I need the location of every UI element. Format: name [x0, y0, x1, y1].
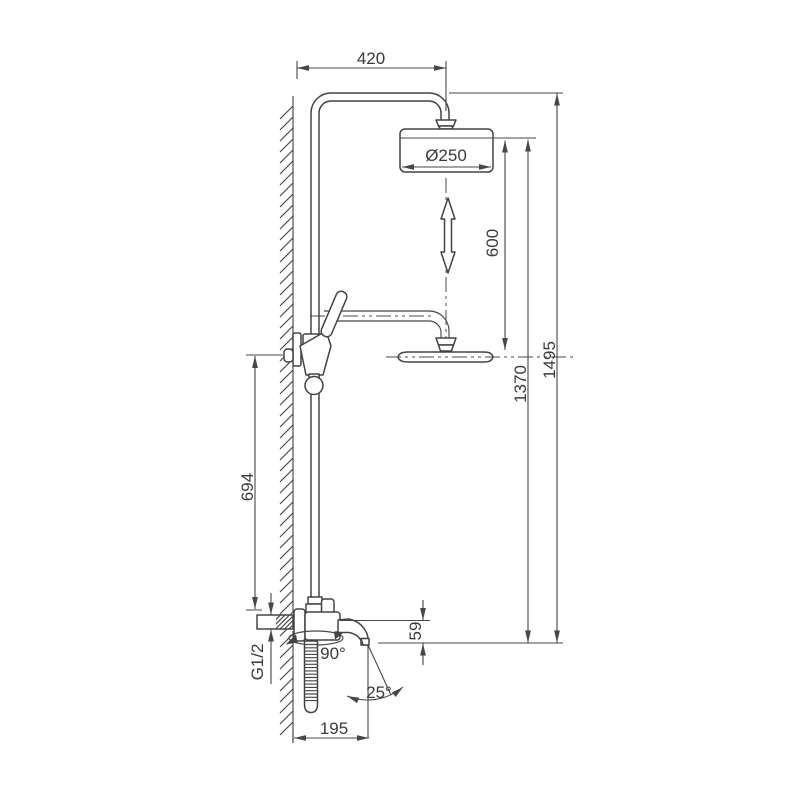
- dim-label-thread-size: G1/2: [248, 644, 267, 681]
- spout-outlet-nib: [361, 639, 369, 646]
- dim-label-bracket-height: 694: [238, 473, 257, 501]
- dim-label-total-height: 1495: [540, 341, 559, 379]
- hand-shower-assembly: [284, 290, 348, 395]
- dimension-labels: 420 Ø250 600 1370 1495 694 59 G1/2 90° 2…: [238, 49, 559, 738]
- dim-label-height-adjustment: 600: [483, 229, 502, 257]
- dim-label-head-diameter: Ø250: [425, 146, 467, 165]
- riser-and-shower-arm: [311, 93, 493, 598]
- phantom-nut-2: [439, 345, 454, 351]
- phantom-nut: [436, 338, 456, 345]
- dim-label-arm-reach: 420: [357, 49, 385, 68]
- dim-label-spout-swivel: 90°: [320, 644, 346, 663]
- shower-hose: [305, 641, 318, 713]
- dim-label-spout-reach: 195: [320, 719, 348, 738]
- wall: [280, 96, 293, 742]
- dim-label-spout-tilt: 25°: [366, 683, 392, 702]
- hand-shower-tip: [305, 377, 323, 395]
- phantom-arm: [324, 311, 449, 338]
- dim-label-spout-drop: 59: [406, 622, 425, 641]
- pipe-collar-top: [308, 597, 322, 604]
- head-connector-nut: [436, 120, 456, 126]
- bracket-knob: [284, 349, 293, 362]
- height-adjust-double-arrow: [441, 198, 455, 273]
- mixer-faucet: [257, 597, 369, 713]
- wall-bracket-plate: [293, 333, 301, 366]
- technical-drawing: 420 Ø250 600 1370 1495 694 59 G1/2 90° 2…: [0, 0, 800, 800]
- hand-shower-handle: [320, 290, 349, 338]
- dim-label-head-height: 1370: [511, 365, 530, 403]
- lowered-position-phantom: [310, 178, 575, 362]
